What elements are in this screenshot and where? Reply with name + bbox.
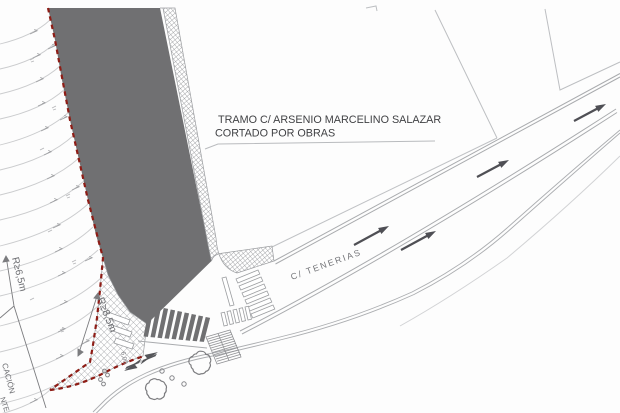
svg-text:CACIÓN: CACIÓN bbox=[0, 362, 17, 395]
svg-text:R≥6,5m: R≥6,5m bbox=[9, 256, 28, 293]
svg-text:CORTADO POR OBRAS: CORTADO POR OBRAS bbox=[215, 128, 335, 140]
svg-text:C/ TENERIAS: C/ TENERIAS bbox=[289, 247, 363, 282]
svg-text:NTE: NTE bbox=[0, 396, 11, 413]
svg-text:TRAMO C/ ARSENIO MARCELINO SAL: TRAMO C/ ARSENIO MARCELINO SALAZAR bbox=[218, 114, 441, 126]
